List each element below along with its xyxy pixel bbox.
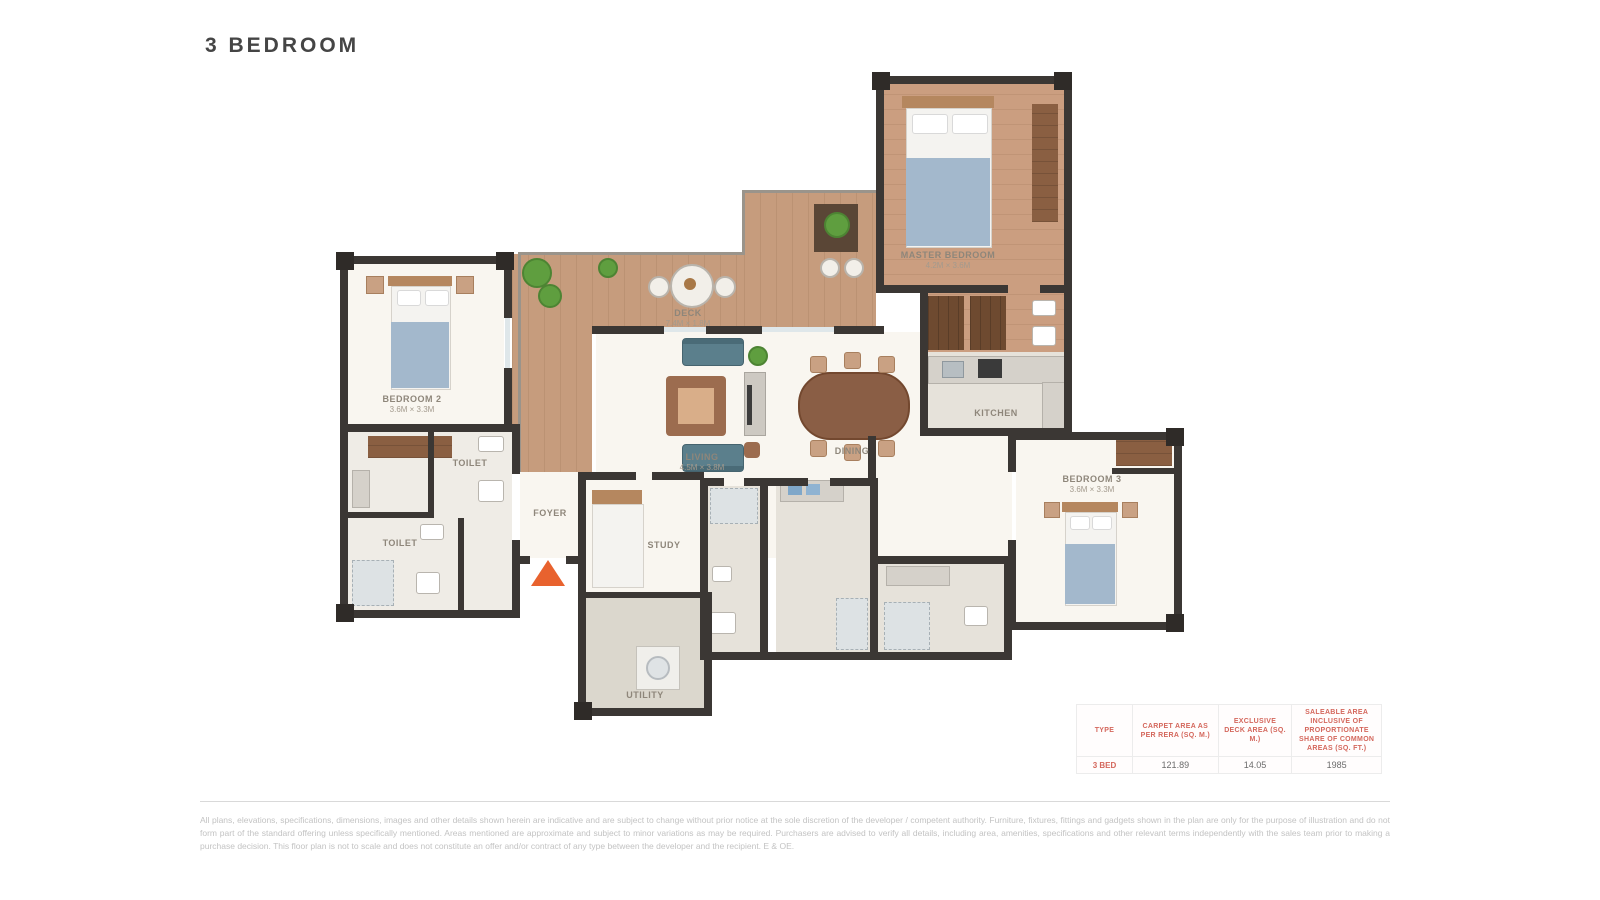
pillow-icon [1070, 516, 1090, 530]
towel-icon [806, 484, 820, 495]
wardrobe-icon [1032, 104, 1058, 222]
blanket-icon [906, 158, 990, 246]
room-label-bedroom3: BEDROOM 3 3.6M × 3.3M [1062, 474, 1121, 495]
window [505, 318, 510, 368]
area-value-carpet: 121.89 [1132, 757, 1218, 774]
room-label-bedroom2: BEDROOM 2 3.6M × 3.3M [382, 394, 441, 415]
room-label-foyer: FOYER [533, 508, 567, 519]
wall [870, 478, 878, 660]
deck-railing [742, 190, 878, 193]
pillow-icon [1092, 516, 1112, 530]
room-name: MASTER BEDROOM [901, 250, 996, 261]
wall [458, 518, 464, 610]
shower-icon [352, 560, 394, 606]
wall [920, 293, 928, 436]
room-dims: 4.5M × 3.8M [680, 463, 725, 473]
wall [1174, 432, 1182, 630]
wall [428, 424, 520, 432]
area-table-col-deck: Exclusive Deck Area (sq. m.) [1218, 705, 1292, 757]
wall [512, 540, 520, 618]
plant-icon [824, 212, 850, 238]
wall [586, 592, 704, 598]
wc-icon [710, 612, 736, 634]
wall [868, 436, 876, 482]
area-value-type: 3 BED [1077, 757, 1133, 774]
room-name: DECK [666, 308, 711, 319]
pillar [1166, 614, 1184, 632]
room-dims: 3.6M × 3.3M [382, 405, 441, 415]
wall [592, 326, 664, 334]
wall [1008, 432, 1016, 472]
chair-icon [844, 352, 861, 369]
sofa-icon [682, 338, 744, 366]
room-dims: 4.2M × 3.6M [901, 261, 996, 271]
bed-headboard-icon [388, 276, 452, 286]
vanity-counter-icon [886, 566, 950, 586]
kitchen-sink-icon [942, 361, 964, 378]
floor-deck-strip [512, 330, 592, 472]
wall [578, 708, 712, 716]
washbasin-icon [478, 436, 504, 452]
wall [1008, 432, 1182, 440]
room-name: STUDY [647, 540, 680, 551]
room-label-toilet2: TOILET [383, 538, 418, 549]
entry-arrow-icon [531, 560, 565, 586]
room-label-study: STUDY [647, 540, 680, 551]
shower-icon [836, 598, 868, 650]
pillow-icon [397, 290, 421, 306]
disclaimer-text: All plans, elevations, specifications, d… [200, 814, 1390, 852]
deck-chair-icon [820, 258, 840, 278]
shower-icon [884, 602, 930, 650]
washbasin-icon [420, 524, 444, 540]
wall [340, 256, 512, 264]
area-value-deck: 14.05 [1218, 757, 1292, 774]
room-name: BEDROOM 2 [382, 394, 441, 405]
wardrobe-icon [928, 296, 964, 350]
wc-icon [416, 572, 440, 594]
wall [706, 326, 762, 334]
chair-icon [810, 440, 827, 457]
bed-headboard-icon [592, 490, 642, 504]
pillar [496, 252, 514, 270]
wall [1040, 285, 1072, 293]
washing-machine-icon [636, 646, 680, 690]
wall [348, 512, 434, 518]
tv-unit-icon [744, 372, 766, 436]
nightstand-icon [456, 276, 474, 294]
deck-table-center-icon [684, 278, 696, 290]
wall [340, 424, 436, 432]
plant-icon [538, 284, 562, 308]
area-table: Type Carpet Area as per RERA (sq. m.) Ex… [1076, 704, 1382, 774]
wall [578, 472, 586, 600]
blanket-icon [1065, 544, 1115, 604]
nightstand-icon [366, 276, 384, 294]
room-name: KITCHEN [974, 408, 1018, 419]
wall [878, 556, 1012, 564]
deck-chair-icon [714, 276, 736, 298]
room-name: FOYER [533, 508, 567, 519]
wall [744, 478, 768, 486]
pillar [336, 252, 354, 270]
area-table-col-carpet: Carpet Area as per RERA (sq. m.) [1132, 705, 1218, 757]
deck-railing [742, 190, 745, 255]
plant-icon [598, 258, 618, 278]
plant-icon [748, 346, 768, 366]
wall [578, 592, 586, 716]
pillar [1054, 72, 1072, 90]
shower-icon [710, 488, 758, 524]
wall [834, 326, 884, 334]
room-name: TOILET [383, 538, 418, 549]
dining-table-icon [798, 372, 910, 440]
room-name: LIVING [680, 452, 725, 463]
wall [512, 556, 530, 564]
wc-icon [964, 606, 988, 626]
wall [504, 368, 512, 432]
chair-icon [810, 356, 827, 373]
wall [340, 424, 348, 618]
wall [768, 652, 878, 660]
blanket-icon [391, 322, 449, 388]
room-name: DINING [835, 446, 870, 457]
chair-icon [878, 440, 895, 457]
wall [700, 478, 724, 486]
area-table-header-row: Type Carpet Area as per RERA (sq. m.) Ex… [1077, 705, 1382, 757]
pillar [1166, 428, 1184, 446]
pillar [574, 702, 592, 720]
deck-railing [518, 252, 744, 255]
wall [340, 256, 348, 432]
study-bed-icon [592, 504, 644, 588]
wardrobe-icon [1116, 440, 1172, 466]
wall [700, 652, 768, 660]
room-name: UTILITY [626, 690, 664, 701]
deck-chair-icon [844, 258, 864, 278]
footer-divider [200, 801, 1390, 802]
room-name: BEDROOM 3 [1062, 474, 1121, 485]
area-table-value-row: 3 BED 121.89 14.05 1985 [1077, 757, 1382, 774]
nightstand-icon [1044, 502, 1060, 518]
floor-plan-page: 3 BEDROOM [0, 0, 1600, 900]
room-dims: 3.6M × 3.3M [1062, 485, 1121, 495]
sliding-window [762, 327, 834, 332]
pillow-icon [425, 290, 449, 306]
room-label-kitchen: KITCHEN [974, 408, 1018, 419]
wall [578, 472, 636, 480]
area-table-col-saleable: Saleable Area inclusive of proportionate… [1292, 705, 1382, 757]
wall [340, 610, 520, 618]
wall [1008, 622, 1182, 630]
stove-icon [978, 359, 1002, 378]
room-label-deck: DECK 7.4M × 1.8M [666, 308, 711, 329]
room-label-dining: DINING [835, 446, 870, 457]
nightstand-icon [1122, 502, 1138, 518]
room-label-master: MASTER BEDROOM 4.2M × 3.6M [901, 250, 996, 271]
pillar [336, 604, 354, 622]
wardrobe-icon [368, 436, 452, 458]
area-value-saleable: 1985 [1292, 757, 1382, 774]
stool-icon [744, 442, 760, 458]
wall [768, 478, 808, 486]
wall [1064, 293, 1072, 436]
wall [1064, 76, 1072, 293]
wall [878, 652, 1012, 660]
bed-headboard-icon [902, 96, 994, 108]
bed-headboard-icon [1062, 502, 1118, 512]
room-label-toilet1: TOILET [453, 458, 488, 469]
washbasin-icon [712, 566, 732, 582]
pillow-icon [912, 114, 948, 134]
coffee-table-icon [666, 376, 726, 436]
page-title: 3 BEDROOM [205, 34, 359, 58]
wc-icon [478, 480, 504, 502]
room-name: TOILET [453, 458, 488, 469]
dresser-icon [352, 470, 370, 508]
room-dims: 7.4M × 1.8M [666, 319, 711, 329]
wall [760, 478, 768, 660]
wall [876, 76, 1072, 84]
wardrobe-icon [970, 296, 1006, 350]
washbasin-icon [1032, 300, 1056, 316]
wc-icon [1032, 326, 1056, 346]
wall [876, 76, 884, 293]
wall [1008, 540, 1016, 630]
deck-chair-icon [648, 276, 670, 298]
wall [700, 478, 708, 660]
room-label-utility: UTILITY [626, 690, 664, 701]
wall [428, 432, 434, 518]
room-label-living: LIVING 4.5M × 3.8M [680, 452, 725, 473]
wall [876, 285, 1008, 293]
pillow-icon [952, 114, 988, 134]
chair-icon [878, 356, 895, 373]
area-table-col-type: Type [1077, 705, 1133, 757]
pillar [872, 72, 890, 90]
